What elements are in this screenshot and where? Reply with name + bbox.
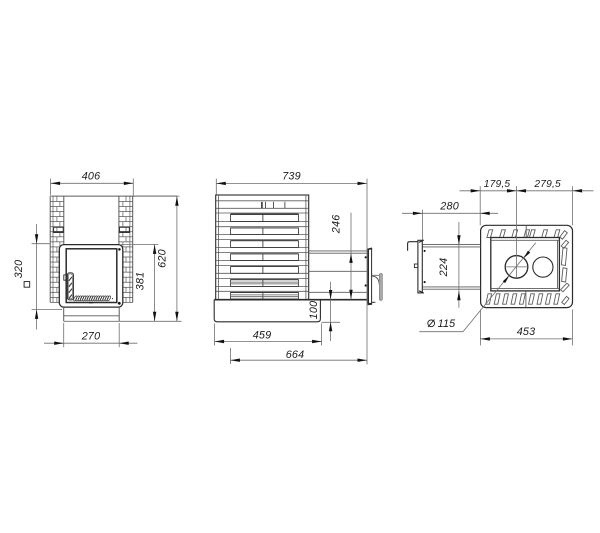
svg-text:100: 100: [308, 301, 320, 320]
svg-text:459: 459: [253, 329, 272, 341]
svg-text:406: 406: [82, 171, 101, 183]
svg-text:280: 280: [439, 201, 459, 213]
svg-text:279,5: 279,5: [533, 179, 561, 190]
svg-text:664: 664: [286, 349, 305, 361]
svg-text:381: 381: [134, 272, 146, 291]
svg-text:453: 453: [517, 326, 536, 338]
svg-text:179,5: 179,5: [484, 179, 511, 190]
svg-text:320: 320: [13, 260, 25, 279]
svg-text:270: 270: [81, 330, 101, 342]
svg-text:739: 739: [282, 171, 301, 183]
svg-text:246: 246: [330, 215, 342, 235]
svg-text:115: 115: [438, 318, 457, 330]
svg-text:620: 620: [157, 249, 169, 268]
svg-text:224: 224: [438, 258, 450, 278]
